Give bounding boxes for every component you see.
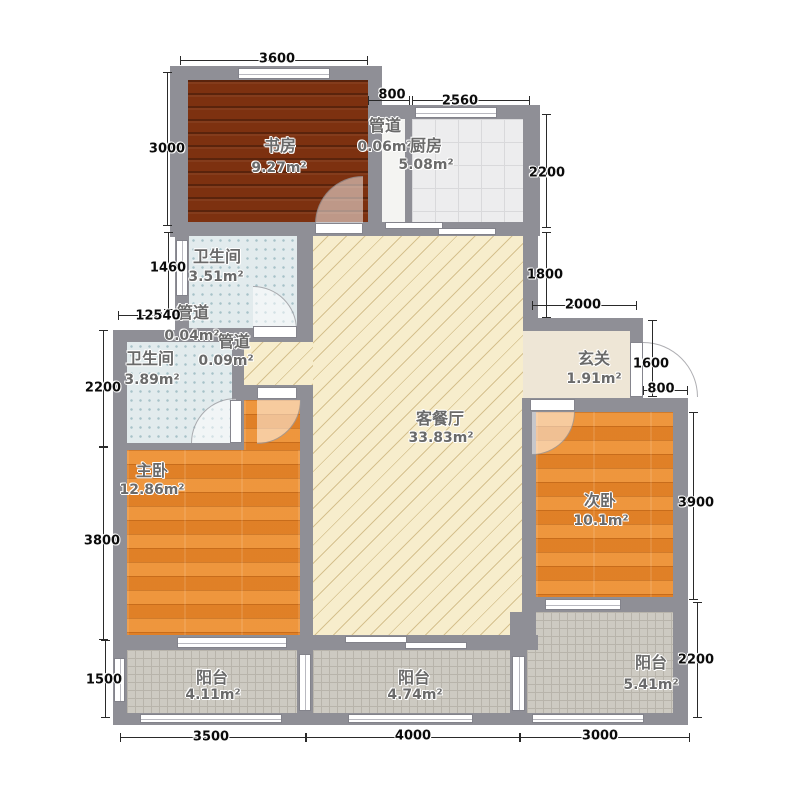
living-dining-area: 33.83m²: [408, 430, 473, 446]
wall: [673, 412, 688, 612]
master-bedroom-door: [257, 387, 297, 399]
second-bedroom-door: [530, 399, 575, 411]
wall: [673, 612, 688, 725]
dim-1500: 1500: [86, 673, 122, 688]
foyer-area: 1.91m²: [566, 371, 621, 387]
second-bedroom-balcony-window: [545, 599, 621, 610]
dim-1800: 1800: [527, 268, 563, 283]
foyer-label: 玄关: [578, 345, 610, 369]
duct-top-area: 0.06m²: [357, 139, 412, 155]
bath-lower-door: [230, 400, 242, 443]
bath-upper-area: 3.51m²: [188, 269, 243, 285]
kitchen-slider-panel: [438, 228, 496, 235]
study-label: 书房: [264, 132, 296, 156]
dim-3500: 3500: [193, 730, 229, 745]
second-bedroom-label: 次卧: [584, 487, 616, 511]
balcony-right-railing: [532, 714, 644, 723]
dim-2000: 2000: [565, 298, 601, 313]
dim-2200-left: 2200: [85, 381, 121, 396]
dim-800-top: 800: [378, 88, 405, 103]
duct-top-label: 管道: [369, 112, 401, 136]
bath-upper-door: [253, 326, 297, 338]
foyer-floor: [523, 331, 630, 398]
living-balcony-slider-panel: [345, 636, 407, 643]
kitchen-slider-panel: [385, 222, 443, 229]
balcony-middle-label: 阳台: [398, 664, 430, 688]
wall: [113, 443, 244, 450]
study-door: [315, 223, 363, 234]
duct-lower-area: 0.09m²: [198, 353, 253, 369]
dim-3000-left: 3000: [149, 142, 185, 157]
duct-mid-label: 管道: [177, 299, 209, 323]
second-bedroom-area: 10.1m²: [573, 513, 628, 529]
study-top-window: [238, 68, 330, 79]
dim-1600: 1600: [633, 357, 669, 372]
balcony-middle-area: 4.74m²: [387, 687, 442, 703]
balcony-left-railing: [140, 714, 282, 723]
floor-plan-canvas: 书房 9.27m² 管道 0.06m² 厨房 5.08m² 卫生间 3.51m²…: [0, 0, 800, 800]
balcony-right-area: 5.41m²: [623, 677, 678, 693]
bath-lower-area: 3.89m²: [124, 372, 179, 388]
living-balcony-slider-panel: [405, 642, 467, 649]
master-bedroom-area: 12.86m²: [119, 482, 184, 498]
dim-3800: 3800: [84, 534, 120, 549]
master-bedroom-balcony-window: [177, 637, 287, 648]
dim-3900: 3900: [678, 496, 714, 511]
dim-2560: 2560: [442, 94, 478, 109]
wall: [297, 236, 313, 342]
duct-lower-label: 管道: [218, 328, 250, 352]
dim-2200-right-bottom: 2200: [678, 653, 714, 668]
dim-3600: 3600: [259, 52, 295, 67]
dim-3000-bottom: 3000: [582, 729, 618, 744]
balcony-middle-railing: [348, 714, 473, 723]
kitchen-top-window: [415, 107, 497, 118]
balcony-left-label: 阳台: [196, 664, 228, 688]
duct-mid-area: 0.04m²: [164, 328, 219, 344]
master-bedroom-label: 主卧: [136, 457, 168, 481]
balcony-left-area: 4.11m²: [185, 687, 240, 703]
bath-lower-label: 卫生间: [126, 345, 174, 369]
dim-4000: 4000: [395, 729, 431, 744]
balcony-right-label: 阳台: [635, 649, 667, 673]
bath-upper-label: 卫生间: [193, 243, 241, 267]
dim-800-right: 800: [647, 382, 674, 397]
balcony-divider-opening: [299, 654, 311, 711]
wall: [300, 400, 313, 635]
living-dining-label: 客餐厅: [416, 405, 464, 429]
kitchen-area: 5.08m²: [398, 157, 453, 173]
dim-2200-right-top: 2200: [529, 166, 565, 181]
balcony-divider-opening: [512, 656, 525, 711]
dim-540: 540: [153, 309, 180, 324]
dim-1460: 1460: [150, 261, 186, 276]
study-area: 9.27m²: [251, 160, 306, 176]
wall: [523, 318, 643, 331]
kitchen-label: 厨房: [410, 132, 442, 156]
